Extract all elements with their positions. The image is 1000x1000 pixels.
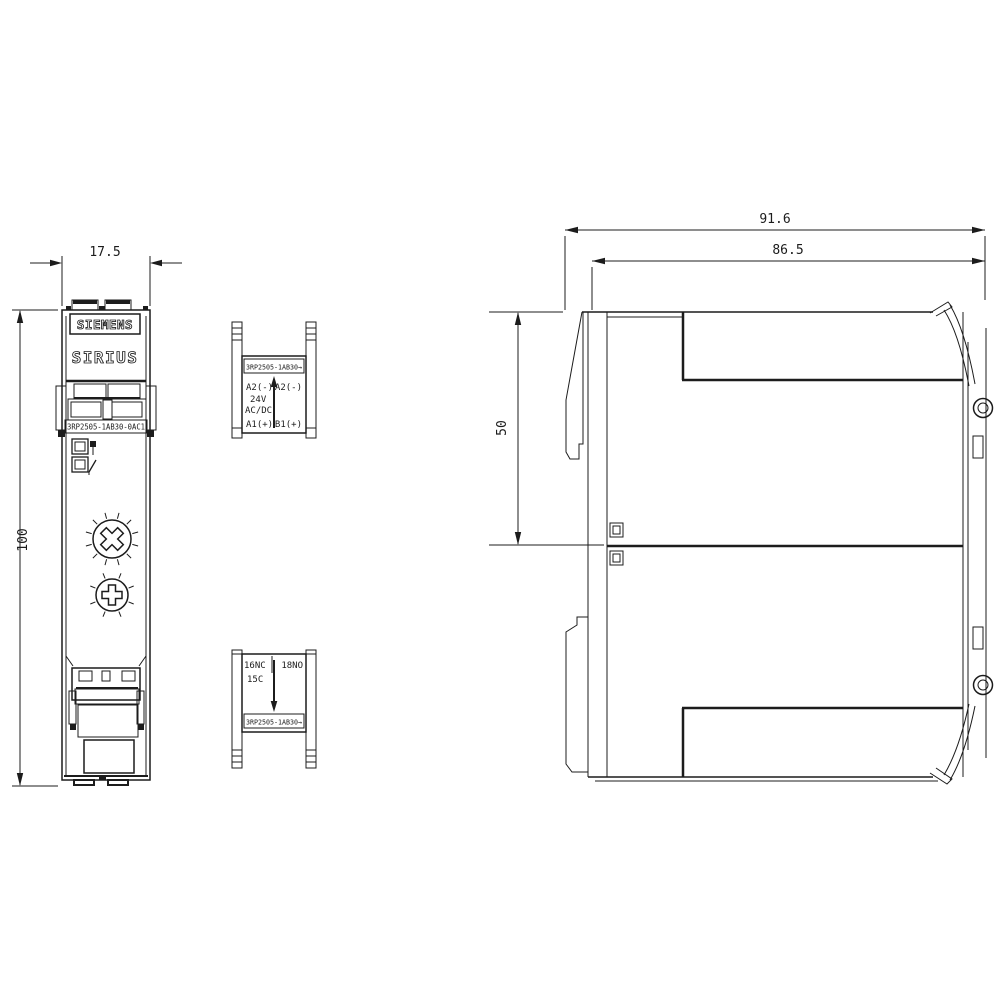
led-output [72, 457, 88, 472]
label-field [84, 740, 134, 773]
led-indicators [72, 439, 96, 475]
data-matrix-code [78, 705, 138, 737]
screw-terminal-right [108, 384, 140, 398]
side-view: 91.6 86.5 50 [489, 212, 993, 784]
terminal-label-voltage: 24V [250, 395, 267, 405]
terminal-label-16nc: 16NC [244, 661, 266, 671]
dimension-height-value: 100 [16, 528, 31, 551]
latch-pivot-bottom [974, 676, 993, 695]
bottom-tab-right [108, 780, 128, 785]
terminal-label-b1: B1(+) [275, 420, 302, 430]
dimension-upper-height-value: 50 [495, 420, 510, 436]
product-line-logo: SIRIUS [72, 348, 139, 367]
latch-slot-bottom [973, 627, 983, 649]
brand-logo-text: SIEMENS [77, 317, 133, 332]
dimension-depth-total-value: 91.6 [759, 212, 790, 227]
supply-symbol-icon [90, 441, 96, 455]
terminal-label-15c: 15C [247, 675, 263, 685]
terminal-label-supply: AC/DC [245, 406, 272, 416]
dimension-depth-body: 86.5 [592, 243, 985, 310]
terminal-cover-top [682, 312, 963, 380]
lower-terminal-area [64, 656, 148, 785]
screw-terminal-left [74, 384, 106, 398]
latch-slot-top [973, 436, 983, 458]
top-terminal-tabs [66, 300, 148, 310]
connector-prong-left [232, 322, 242, 438]
contact-symbol-icon [89, 460, 96, 475]
terminal-label-a1: A1(+) [246, 420, 273, 430]
terminal-label-18no: 18NO [281, 661, 303, 671]
time-range-dial [86, 513, 138, 565]
latch-hook-bottom [930, 768, 952, 784]
din-rail-guide-bottom [566, 617, 588, 772]
bottom-tab-left [74, 780, 94, 785]
dimension-width: 17.5 [30, 245, 182, 306]
connector-bottom-part-number: 3RP2505-1AB30→ [246, 719, 302, 727]
brand-logo: SIEMENS [70, 314, 140, 334]
led-power [72, 439, 88, 454]
front-view: 17.5 100 SIEMENS SIR [12, 245, 182, 786]
technical-drawing: 17.5 100 SIEMENS SIR [0, 0, 1000, 1000]
dimension-depth-body-value: 86.5 [772, 243, 803, 258]
front-part-number: 3RP2505-1AB30-0AC1 [67, 423, 145, 432]
connector-top-detail: 3RP2505-1AB30→ A2(-) A2(-) 24V AC/DC A1(… [232, 322, 316, 438]
connector-bottom-detail: 16NC 18NO 15C 3RP2505-1AB30→ [232, 650, 316, 768]
dimension-height: 100 [12, 310, 58, 786]
connector-prong-right [306, 322, 316, 438]
side-window-lower [610, 551, 623, 565]
din-rail-guide-top [566, 312, 583, 459]
dimension-width-value: 17.5 [89, 245, 120, 260]
terminal-cover-bottom [682, 708, 963, 777]
dimension-upper-height: 50 [489, 312, 604, 545]
screw-terminal-bottom [75, 689, 139, 704]
side-window-upper [610, 523, 623, 537]
terminal-label-a2-left: A2(-) [246, 383, 273, 393]
terminal-label-a2-right: A2(-) [275, 383, 302, 393]
dial-tick-marks [90, 573, 133, 616]
time-setting-dial [90, 573, 133, 616]
latch-hook-top [930, 302, 952, 316]
connector-top-part-number: 3RP2505-1AB30→ [246, 364, 302, 372]
din-latch-assembly [930, 302, 993, 784]
upper-terminal-area: 3RP2505-1AB30-0AC1 [56, 381, 156, 437]
latch-pivot-top [974, 399, 993, 418]
